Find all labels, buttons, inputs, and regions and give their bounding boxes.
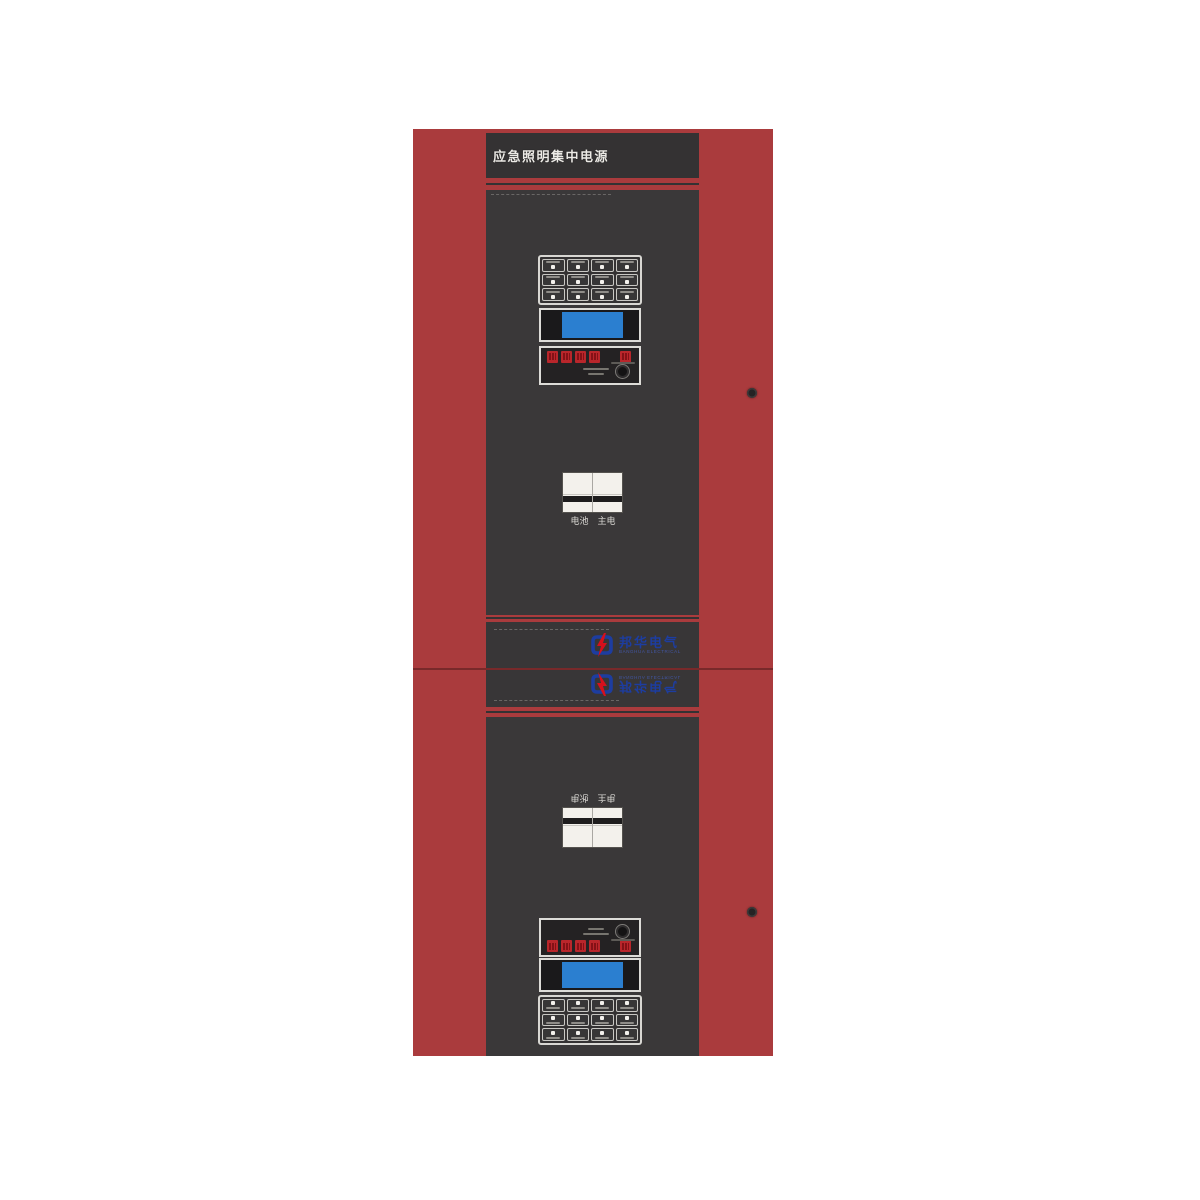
upper-unit-panel xyxy=(486,190,699,615)
divider-line xyxy=(486,183,699,185)
button-micro-label xyxy=(546,261,560,263)
button-cap xyxy=(551,1031,555,1035)
keypad-button[interactable] xyxy=(567,274,590,287)
brand-name-en: BANGHUA ELECTRICAL xyxy=(619,650,681,655)
led-indicator xyxy=(547,351,558,363)
button-cap xyxy=(576,1001,580,1005)
button-cap xyxy=(625,265,629,269)
button-cap xyxy=(576,1016,580,1020)
keypad-button[interactable] xyxy=(542,259,565,272)
lightning-logo-icon xyxy=(589,633,615,657)
keypad-button[interactable] xyxy=(616,274,639,287)
button-cap xyxy=(625,280,629,284)
keypad-button[interactable] xyxy=(616,1028,639,1041)
button-micro-label xyxy=(620,261,634,263)
panel-stitch-line xyxy=(491,194,611,195)
cabinet-title: 应急照明集中电源 xyxy=(486,146,609,165)
button-micro-label xyxy=(571,1007,585,1009)
brand-logo-mirrored: 邦华电气 BANGHUA ELECTRICAL xyxy=(589,670,681,698)
lower-keypad xyxy=(538,995,642,1045)
button-cap xyxy=(600,1031,604,1035)
button-cap xyxy=(551,295,555,299)
led-indicator xyxy=(575,351,586,363)
button-micro-label xyxy=(546,1037,560,1039)
button-cap xyxy=(625,1001,629,1005)
keypad-button[interactable] xyxy=(567,1014,590,1027)
panel-screw xyxy=(747,388,757,398)
breaker-label-mains: 主电 xyxy=(598,792,616,805)
button-micro-label xyxy=(546,1022,560,1024)
keypad-button[interactable] xyxy=(567,999,590,1012)
button-cap xyxy=(551,1001,555,1005)
breaker-label-battery: 电池 xyxy=(570,514,588,527)
button-cap xyxy=(551,265,555,269)
led-indicator xyxy=(547,940,558,952)
keypad-button[interactable] xyxy=(567,1028,590,1041)
keypad-button[interactable] xyxy=(616,288,639,301)
keypad-button[interactable] xyxy=(616,259,639,272)
led-indicator-row xyxy=(547,940,631,952)
button-micro-label xyxy=(546,276,560,278)
button-cap xyxy=(625,1016,629,1020)
button-micro-label xyxy=(595,276,609,278)
divider-line xyxy=(486,617,699,619)
upper-keypad xyxy=(538,255,642,305)
button-cap xyxy=(551,280,555,284)
lower-indicator-panel xyxy=(539,918,641,957)
cabinet-header-bar: 应急照明集中电源 xyxy=(486,133,699,178)
breaker-label-battery: 电池 xyxy=(570,792,588,805)
keypad-button[interactable] xyxy=(567,259,590,272)
brand-logo: 邦华电气 BANGHUA ELECTRICAL xyxy=(589,631,681,659)
button-cap xyxy=(551,1016,555,1020)
buzzer-knob[interactable] xyxy=(615,364,630,379)
upper-lcd-display xyxy=(539,308,641,342)
brand-name-cn: 邦华电气 xyxy=(619,680,681,693)
keypad-button[interactable] xyxy=(591,288,614,301)
button-micro-label xyxy=(546,1007,560,1009)
indicator-micro-text xyxy=(583,925,609,935)
button-cap xyxy=(600,295,604,299)
button-micro-label xyxy=(620,276,634,278)
panel-stitch-line xyxy=(494,629,609,630)
upper-indicator-panel xyxy=(539,346,641,385)
button-micro-label xyxy=(620,1022,634,1024)
button-cap xyxy=(625,295,629,299)
button-micro-label xyxy=(595,1007,609,1009)
breaker-label-mains: 主电 xyxy=(598,514,616,527)
button-cap xyxy=(576,280,580,284)
button-micro-label xyxy=(546,291,560,293)
keypad-button[interactable] xyxy=(591,1014,614,1027)
button-cap xyxy=(600,280,604,284)
led-indicator xyxy=(575,940,586,952)
keypad-button[interactable] xyxy=(591,274,614,287)
brand-name-en: BANGHUA ELECTRICAL xyxy=(619,675,681,680)
panel-screw xyxy=(747,907,757,917)
led-indicator xyxy=(589,940,600,952)
button-micro-label xyxy=(571,1037,585,1039)
button-cap xyxy=(625,1031,629,1035)
emergency-power-cabinet: 应急照明集中电源 电池 xyxy=(413,129,773,1056)
button-micro-label xyxy=(620,1007,634,1009)
upper-breaker-labels: 电池 主电 xyxy=(553,514,633,527)
keypad-button[interactable] xyxy=(542,274,565,287)
lcd-screen xyxy=(562,312,623,338)
led-indicator xyxy=(561,940,572,952)
keypad-button[interactable] xyxy=(542,1014,565,1027)
keypad-button[interactable] xyxy=(542,1028,565,1041)
button-micro-label xyxy=(571,261,585,263)
keypad-button[interactable] xyxy=(542,288,565,301)
button-micro-label xyxy=(595,1037,609,1039)
lower-breaker-labels: 电池 主电 xyxy=(553,792,633,805)
keypad-button[interactable] xyxy=(591,259,614,272)
keypad-button[interactable] xyxy=(616,999,639,1012)
button-cap xyxy=(600,1016,604,1020)
lower-lcd-display xyxy=(539,958,641,992)
led-indicator xyxy=(589,351,600,363)
button-cap xyxy=(600,1001,604,1005)
button-cap xyxy=(600,265,604,269)
button-micro-label xyxy=(620,291,634,293)
brand-name-cn: 邦华电气 xyxy=(619,636,681,649)
lightning-logo-icon xyxy=(589,672,615,696)
knob-micro-label xyxy=(611,939,635,941)
led-indicator xyxy=(620,940,631,952)
indicator-micro-text xyxy=(583,368,609,378)
button-micro-label xyxy=(595,1022,609,1024)
divider-line xyxy=(486,711,699,713)
keypad-button[interactable] xyxy=(591,999,614,1012)
keypad-button[interactable] xyxy=(591,1028,614,1041)
button-micro-label xyxy=(595,261,609,263)
lcd-screen xyxy=(562,962,623,988)
panel-stitch-line xyxy=(494,700,619,701)
upper-circuit-breakers[interactable] xyxy=(563,473,622,512)
keypad-button[interactable] xyxy=(616,1014,639,1027)
buzzer-knob[interactable] xyxy=(615,924,630,939)
keypad-button[interactable] xyxy=(567,288,590,301)
button-micro-label xyxy=(595,291,609,293)
button-micro-label xyxy=(571,1022,585,1024)
lower-circuit-breakers[interactable] xyxy=(563,808,622,847)
led-indicator xyxy=(561,351,572,363)
button-micro-label xyxy=(571,276,585,278)
button-cap xyxy=(576,1031,580,1035)
button-cap xyxy=(576,295,580,299)
page-background: 应急照明集中电源 电池 xyxy=(0,0,1200,1200)
button-micro-label xyxy=(620,1037,634,1039)
keypad-button[interactable] xyxy=(542,999,565,1012)
button-cap xyxy=(576,265,580,269)
button-micro-label xyxy=(571,291,585,293)
